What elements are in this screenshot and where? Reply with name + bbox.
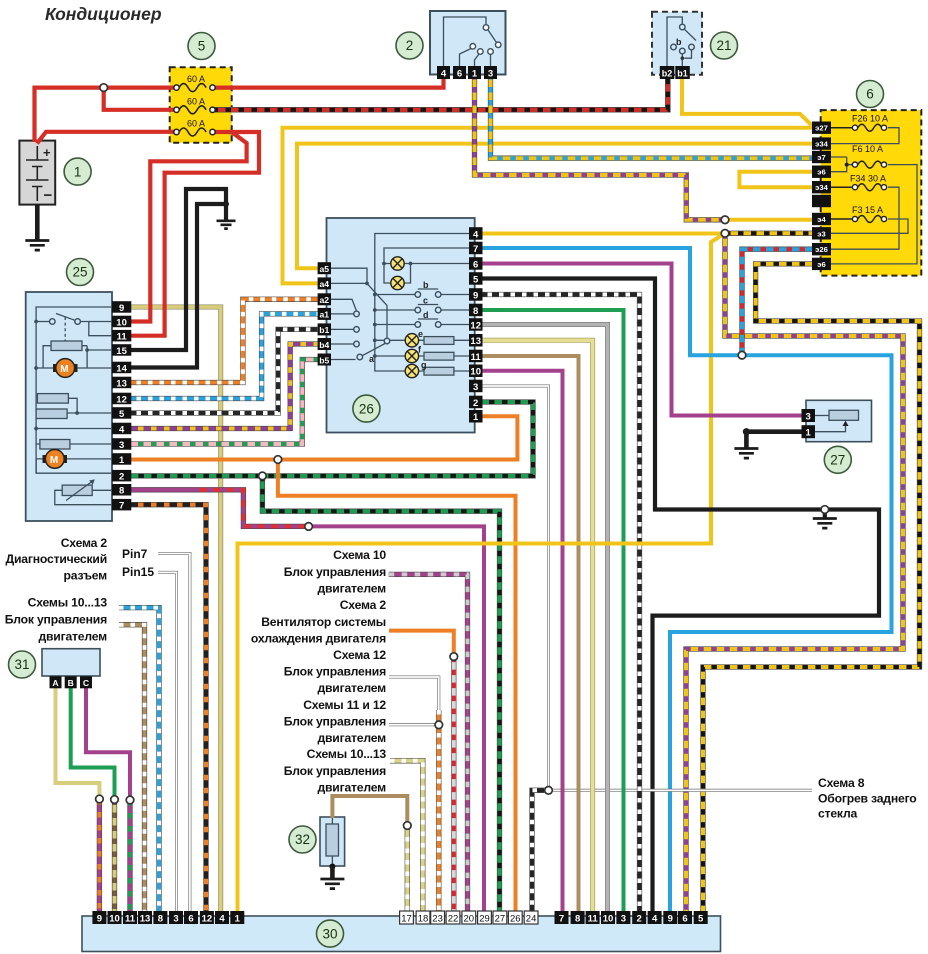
svg-text:4: 4 — [219, 913, 225, 924]
svg-text:12: 12 — [202, 913, 213, 924]
svg-text:14: 14 — [116, 363, 127, 374]
svg-text:э3: э3 — [817, 229, 825, 238]
svg-text:Схема 10: Схема 10 — [333, 548, 386, 562]
svg-text:э34: э34 — [815, 140, 828, 149]
svg-text:Схемы 11 и 12: Схемы 11 и 12 — [303, 698, 386, 712]
svg-text:1: 1 — [806, 428, 812, 439]
svg-text:A: A — [52, 678, 58, 688]
svg-text:17: 17 — [401, 913, 412, 924]
svg-text:F26 10 A: F26 10 A — [852, 114, 888, 124]
svg-text:C: C — [83, 678, 89, 688]
svg-text:двигателем: двигателем — [317, 582, 386, 596]
svg-text:4: 4 — [119, 424, 125, 435]
svg-text:2: 2 — [119, 472, 124, 483]
svg-text:26: 26 — [510, 913, 521, 924]
svg-text:8: 8 — [575, 913, 580, 924]
svg-text:э4: э4 — [817, 215, 826, 224]
svg-text:a1: a1 — [320, 310, 330, 320]
svg-text:22: 22 — [448, 913, 459, 924]
svg-text:60 A: 60 A — [187, 97, 205, 107]
svg-text:10: 10 — [116, 317, 127, 328]
svg-text:9: 9 — [97, 913, 102, 924]
svg-text:20: 20 — [464, 913, 475, 924]
svg-text:27: 27 — [495, 913, 506, 924]
svg-text:9: 9 — [119, 303, 124, 314]
svg-text:32: 32 — [295, 832, 310, 847]
svg-text:11: 11 — [125, 913, 136, 924]
svg-text:Схемы 10...13: Схемы 10...13 — [28, 596, 108, 610]
svg-text:1: 1 — [235, 913, 241, 924]
svg-text:13: 13 — [116, 378, 127, 389]
svg-text:a5: a5 — [320, 264, 330, 274]
svg-text:2: 2 — [406, 38, 414, 53]
svg-text:Блок управления: Блок управления — [284, 764, 386, 778]
svg-text:3: 3 — [806, 412, 811, 423]
svg-text:12: 12 — [116, 394, 127, 405]
svg-text:Кондиционер: Кондиционер — [45, 4, 162, 24]
svg-text:1: 1 — [74, 164, 82, 179]
svg-text:−: − — [44, 187, 53, 204]
svg-text:8: 8 — [473, 306, 478, 317]
svg-text:Блок управления: Блок управления — [284, 565, 386, 579]
svg-text:24: 24 — [526, 913, 537, 924]
svg-text:двигателем: двигателем — [317, 681, 386, 695]
svg-text:10: 10 — [109, 913, 120, 924]
svg-text:двигателем: двигателем — [317, 781, 386, 795]
svg-text:Схема 8: Схема 8 — [818, 776, 865, 790]
svg-text:M: M — [60, 364, 68, 375]
svg-text:5: 5 — [119, 409, 125, 420]
svg-text:7: 7 — [559, 913, 564, 924]
svg-text:10: 10 — [470, 367, 481, 378]
svg-text:13: 13 — [140, 913, 151, 924]
svg-text:9: 9 — [668, 913, 673, 924]
svg-text:э26: э26 — [815, 245, 828, 254]
svg-text:2: 2 — [637, 913, 642, 924]
svg-text:F3 15 A: F3 15 A — [852, 205, 883, 215]
svg-text:Схема 2: Схема 2 — [61, 536, 108, 550]
svg-text:11: 11 — [471, 352, 482, 363]
svg-text:3: 3 — [488, 68, 493, 79]
svg-text:a2: a2 — [320, 295, 330, 305]
svg-text:b1: b1 — [677, 68, 688, 78]
svg-text:b4: b4 — [319, 340, 329, 350]
svg-text:э6: э6 — [817, 260, 825, 269]
svg-text:5: 5 — [473, 274, 479, 285]
svg-text:4: 4 — [473, 229, 479, 240]
svg-text:5: 5 — [698, 913, 704, 924]
svg-text:1: 1 — [473, 412, 479, 423]
svg-text:Схема 2: Схема 2 — [340, 598, 387, 612]
svg-text:e: e — [418, 329, 423, 339]
svg-text:+: + — [43, 145, 51, 160]
svg-text:5: 5 — [198, 39, 206, 54]
svg-text:э27: э27 — [815, 124, 828, 133]
svg-text:3: 3 — [119, 440, 124, 451]
svg-text:Блок управления: Блок управления — [284, 665, 386, 679]
svg-text:э6: э6 — [817, 168, 825, 177]
svg-text:Блок управления: Блок управления — [5, 613, 107, 627]
svg-text:23: 23 — [432, 913, 443, 924]
svg-text:b5: b5 — [319, 355, 329, 365]
svg-text:b2: b2 — [662, 68, 673, 78]
svg-text:18: 18 — [418, 913, 429, 924]
svg-text:27: 27 — [830, 453, 845, 468]
svg-text:4: 4 — [652, 913, 658, 924]
svg-text:3: 3 — [173, 913, 178, 924]
svg-text:Pin15: Pin15 — [122, 565, 154, 579]
svg-text:8: 8 — [119, 486, 124, 497]
svg-text:Pin7: Pin7 — [122, 547, 148, 561]
svg-text:э34: э34 — [815, 183, 828, 192]
svg-text:9: 9 — [473, 290, 478, 301]
svg-text:11: 11 — [588, 913, 599, 924]
svg-text:3: 3 — [621, 913, 626, 924]
svg-text:э7: э7 — [817, 153, 825, 162]
svg-text:b: b — [676, 37, 682, 47]
svg-text:b1: b1 — [319, 325, 329, 335]
svg-text:26: 26 — [359, 401, 374, 416]
svg-text:охлаждения двигателя: охлаждения двигателя — [251, 632, 386, 646]
svg-text:a4: a4 — [320, 279, 330, 289]
svg-text:11: 11 — [117, 332, 128, 343]
svg-text:3: 3 — [473, 382, 478, 393]
svg-text:c: c — [423, 296, 428, 306]
svg-text:b: b — [423, 280, 429, 290]
svg-text:Схемы 10...13: Схемы 10...13 — [307, 747, 387, 761]
svg-text:B: B — [68, 678, 74, 688]
svg-text:Схема 12: Схема 12 — [333, 648, 386, 662]
svg-text:7: 7 — [473, 244, 478, 255]
svg-text:6: 6 — [473, 259, 478, 270]
svg-text:F6 10 A: F6 10 A — [852, 144, 883, 154]
svg-text:60 A: 60 A — [187, 74, 205, 84]
svg-text:M: M — [50, 455, 58, 466]
svg-text:6: 6 — [682, 913, 687, 924]
svg-text:двигателем: двигателем — [317, 731, 386, 745]
svg-text:7: 7 — [119, 501, 124, 512]
svg-text:Обогрев заднего: Обогрев заднего — [818, 792, 917, 806]
svg-text:двигателем: двигателем — [38, 630, 107, 644]
svg-text:12: 12 — [470, 320, 481, 331]
svg-text:6: 6 — [188, 913, 193, 924]
svg-text:Диагностический: Диагностический — [6, 552, 107, 566]
svg-text:21: 21 — [716, 38, 731, 53]
svg-text:31: 31 — [14, 657, 29, 672]
svg-text:d: d — [423, 310, 429, 320]
svg-text:разъем: разъем — [64, 569, 108, 583]
svg-text:стекла: стекла — [818, 807, 858, 821]
svg-text:Вентилятор системы: Вентилятор системы — [261, 615, 386, 629]
svg-text:60 A: 60 A — [187, 119, 205, 129]
svg-text:25: 25 — [72, 265, 87, 280]
svg-text:6: 6 — [866, 87, 874, 102]
svg-text:F34 30 A: F34 30 A — [850, 174, 886, 184]
svg-text:29: 29 — [479, 913, 490, 924]
svg-text:1: 1 — [472, 68, 478, 79]
svg-text:15: 15 — [116, 346, 127, 357]
svg-text:4: 4 — [441, 68, 447, 79]
svg-text:8: 8 — [158, 913, 163, 924]
svg-text:10: 10 — [603, 913, 614, 924]
svg-text:6: 6 — [457, 68, 462, 79]
svg-text:g: g — [421, 360, 427, 370]
svg-text:1: 1 — [119, 455, 125, 466]
svg-text:2: 2 — [473, 398, 478, 409]
svg-text:Блок управления: Блок управления — [284, 715, 386, 729]
svg-text:13: 13 — [470, 336, 481, 347]
svg-text:30: 30 — [322, 926, 337, 941]
